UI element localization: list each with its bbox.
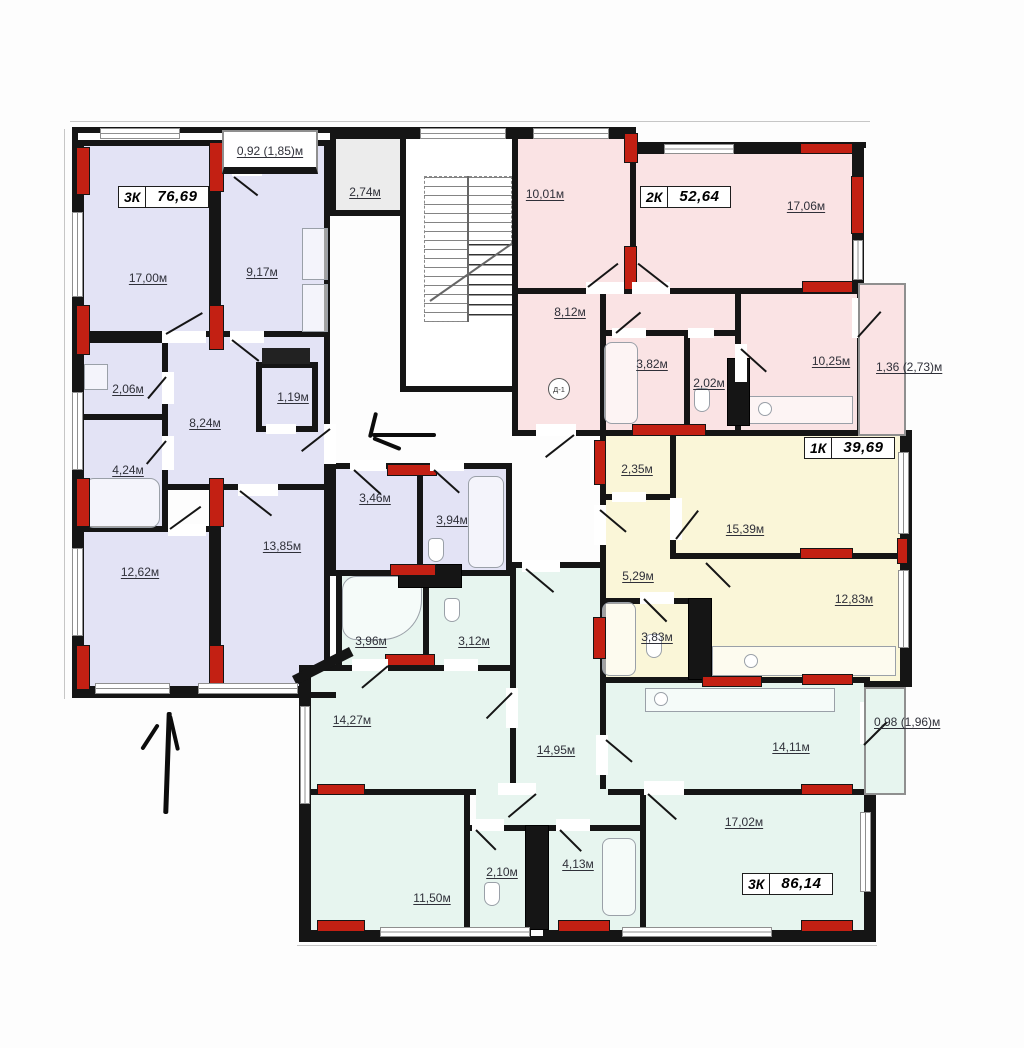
pier xyxy=(702,676,762,687)
room-11-50 xyxy=(305,789,470,936)
window xyxy=(300,706,310,804)
apartment-type: 1К xyxy=(804,437,832,459)
room-label: 0,92 (1,85)м xyxy=(237,144,303,158)
room-label: 3,12м xyxy=(458,634,490,648)
room-label: 3,96м xyxy=(355,634,387,648)
vestibule-2-74 xyxy=(330,133,406,216)
pier xyxy=(802,674,853,685)
room-label: 15,39м xyxy=(726,522,764,536)
room-14-95 xyxy=(510,562,606,795)
room-label: 14,11м xyxy=(772,740,809,754)
room-label: 2,06м xyxy=(112,382,144,396)
room-2-10 xyxy=(464,825,531,936)
apartment-area: 52,64 xyxy=(668,186,731,208)
apartment-area: 39,69 xyxy=(832,437,895,459)
room-label: 3,46м xyxy=(359,491,391,505)
bathtub xyxy=(604,342,638,424)
pier xyxy=(209,478,224,527)
bathtub xyxy=(602,838,636,916)
door-leaf xyxy=(545,434,575,458)
kitchen-counter xyxy=(712,646,896,676)
floor-plan: 3К 76,69 2К 52,64 1К 39,69 3К 86,14 17,0… xyxy=(0,0,1024,1048)
sink xyxy=(654,692,668,706)
room-label: 2,02м xyxy=(693,376,725,390)
stair-stringer xyxy=(467,176,469,322)
apartment-type: 2К xyxy=(640,186,668,208)
room-label: 14,95м xyxy=(537,743,575,757)
window xyxy=(853,240,863,280)
room-10-01 xyxy=(512,133,636,294)
toilet xyxy=(694,388,710,412)
pier xyxy=(76,645,90,690)
annotation-arrow-left-barb xyxy=(372,436,401,451)
window xyxy=(860,812,871,892)
room-5-29-hall xyxy=(600,494,676,604)
window xyxy=(72,548,83,636)
door-opening xyxy=(266,424,296,434)
window xyxy=(100,128,180,139)
window xyxy=(622,927,772,937)
room-label: 5,29м xyxy=(622,569,654,583)
pier xyxy=(624,133,638,163)
hall-extension-yellow xyxy=(670,559,706,598)
door-mark-circle: Д-1 xyxy=(548,378,570,400)
sink xyxy=(758,402,772,416)
pier xyxy=(558,920,610,932)
room-label: 9,17м xyxy=(246,265,278,279)
pier xyxy=(800,143,853,154)
window xyxy=(533,128,609,139)
balcony-green xyxy=(864,687,906,795)
door-opening xyxy=(644,781,684,795)
door-mark-label: Д-1 xyxy=(553,385,565,394)
washer xyxy=(84,364,108,390)
exterior-line xyxy=(297,945,877,946)
pier xyxy=(76,478,90,527)
apartment-type: 3К xyxy=(118,186,146,208)
sink xyxy=(744,654,758,668)
room-label: 17,06м xyxy=(787,199,825,213)
room-label: 2,74м xyxy=(349,185,381,199)
apartment-type: 3К xyxy=(742,873,770,895)
pier xyxy=(594,440,606,485)
door-opening xyxy=(536,424,576,436)
room-label: 2,10м xyxy=(486,865,518,879)
window xyxy=(664,144,734,154)
door-opening xyxy=(612,492,646,502)
pier xyxy=(802,281,853,293)
pier xyxy=(76,147,90,195)
window xyxy=(898,570,909,648)
window xyxy=(95,683,170,694)
room-label: 2,35м xyxy=(621,462,653,476)
pier xyxy=(800,548,853,559)
pier xyxy=(801,920,853,932)
bathtub xyxy=(602,602,636,676)
room-label: 8,12м xyxy=(554,305,586,319)
room-12-62 xyxy=(78,526,215,692)
apartment-tag-3k-left: 3К 76,69 xyxy=(118,186,209,208)
vent-shaft xyxy=(688,598,712,680)
bathtub xyxy=(468,476,504,568)
door-opening xyxy=(688,328,714,338)
pier xyxy=(897,538,908,564)
toilet xyxy=(444,598,460,622)
room-17-02 xyxy=(640,789,870,936)
vent-shaft xyxy=(525,825,549,930)
room-3-46 xyxy=(330,463,423,576)
toilet xyxy=(428,538,444,562)
pier xyxy=(390,564,436,576)
room-14-27 xyxy=(305,665,516,795)
room-label: 14,27м xyxy=(333,713,371,727)
room-17-06 xyxy=(630,148,858,294)
pier xyxy=(593,617,606,659)
apartment-area: 76,69 xyxy=(146,186,209,208)
room-label: 13,85м xyxy=(263,539,301,553)
room-label: 17,02м xyxy=(725,815,763,829)
apartment-tag-3k-bottom: 3К 86,14 xyxy=(742,873,833,895)
door-opening xyxy=(498,783,536,795)
kitchen-counter xyxy=(302,228,328,280)
annotation-arrow-up-barb xyxy=(140,723,160,750)
pier xyxy=(801,784,853,795)
exterior-line xyxy=(64,129,65,699)
bathtub xyxy=(84,478,160,528)
kitchen-counter xyxy=(302,284,328,332)
pier xyxy=(317,784,365,795)
apartment-tag-1k: 1К 39,69 xyxy=(804,437,895,459)
room-label: 10,25м xyxy=(812,354,850,368)
window xyxy=(380,927,530,937)
room-label: 12,83м xyxy=(835,592,873,606)
pier xyxy=(209,305,224,350)
pier xyxy=(851,176,864,234)
exterior-line xyxy=(70,121,870,122)
room-label: 4,24м xyxy=(112,463,144,477)
window xyxy=(72,392,83,470)
pier xyxy=(76,305,90,355)
pier xyxy=(385,654,435,666)
pier xyxy=(317,920,365,932)
room-label: 8,24м xyxy=(189,416,221,430)
balcony-label: 1,36 (2,73)м xyxy=(876,360,942,374)
window xyxy=(420,128,506,139)
room-label: 11,50м xyxy=(413,891,450,905)
pier xyxy=(632,424,706,436)
window xyxy=(898,452,909,534)
room-label: 3,83м xyxy=(641,630,673,644)
kitchen-counter xyxy=(645,688,835,712)
room-17-00 xyxy=(78,140,215,337)
room-label: 17,00м xyxy=(129,271,167,285)
apartment-tag-2k: 2К 52,64 xyxy=(640,186,731,208)
room-label: 10,01м xyxy=(526,187,564,201)
balcony-label: 0,98 (1,96)м xyxy=(874,715,940,729)
stair-steps xyxy=(468,244,512,322)
window xyxy=(198,683,298,694)
room-label: 1,19м xyxy=(277,390,309,404)
room-label: 3,94м xyxy=(436,513,468,527)
room-label: 3,82м xyxy=(636,357,668,371)
annotation-arrow-left-shaft xyxy=(372,433,436,437)
toilet xyxy=(484,882,500,906)
door-opening xyxy=(444,659,478,671)
apartment-area: 86,14 xyxy=(770,873,833,895)
window xyxy=(72,212,83,297)
room-label: 12,62м xyxy=(121,565,159,579)
counter-block xyxy=(262,348,310,364)
room-13-85 xyxy=(215,484,330,692)
room-label: 4,13м xyxy=(562,857,594,871)
